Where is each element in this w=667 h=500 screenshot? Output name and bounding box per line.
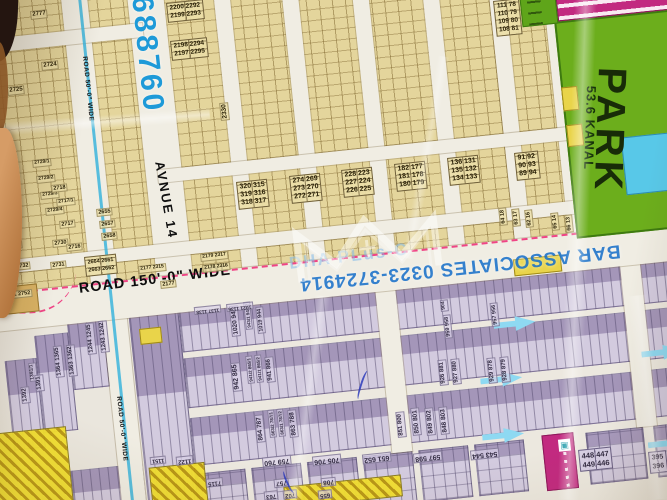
plot-number-label: 1391: [34, 374, 45, 392]
plot-number-label: 926 881: [437, 360, 449, 386]
plot-number-label: 2798: [2, 0, 20, 11]
plot-id-text: 688760: [124, 0, 170, 115]
plot-number-label: 929 878: [486, 358, 498, 384]
plot-number-label: 2716: [66, 242, 83, 252]
plot-number-label: 863/1 787/2: [276, 409, 286, 437]
plot-number-label: 763: [264, 490, 279, 500]
plot-number-label: 2734: [2, 216, 19, 226]
plot-number-label: 66 13: [564, 214, 574, 233]
plot-number-label: 395 396: [648, 450, 667, 474]
plot-number-label: 2655: [96, 207, 113, 217]
plot-number-label: 2200 2292 2199 2293: [166, 0, 205, 23]
plot-number-label: 2732: [14, 261, 31, 271]
plot-number-label: 2717: [59, 219, 76, 229]
plot-number-label: 182 177 181 178 180 179: [394, 161, 428, 192]
plot-number-label: 942 865: [230, 362, 243, 392]
road-50-label: ROAD 50'-0" WIDE: [115, 396, 129, 462]
plot-number-label: 64 18: [498, 207, 508, 226]
label-overlay: 688760 AVNUE 14 ROAD 50'-0" WIDE ROAD 50…: [0, 0, 667, 500]
plot-number-label: 2729/2: [36, 174, 56, 184]
avenue-label: AVNUE 14: [152, 160, 180, 240]
pen-mark: [356, 370, 371, 400]
plot-number-label: 2179 2317: [200, 251, 228, 262]
plot-number-label: 2718: [51, 183, 68, 193]
plot-number-label: 2777: [30, 9, 48, 20]
plot-number-label: 2714: [2, 198, 19, 208]
plot-number-label: 543 544: [470, 447, 500, 460]
plot-number-label: 651 652: [362, 451, 392, 464]
plot-number-label: 136 131 135 132 134 133: [447, 155, 481, 186]
plot-number-label: 941 866: [264, 357, 276, 383]
plot-number-label: 65 14: [550, 212, 560, 231]
plot-number-label: 904: [440, 299, 449, 312]
plot-number-label: 850 801: [410, 408, 422, 436]
park-area-label: 53.6 KANAL: [581, 85, 599, 170]
plot-number-label: 851 800: [395, 412, 407, 438]
plot-number-label: 597 598: [413, 450, 443, 463]
plot-number-label: 63 17: [511, 208, 521, 227]
plot-number-label: 1243 1242: [98, 320, 110, 353]
plot-number-label: 2729/1: [32, 158, 52, 168]
plot-number-label: 708: [321, 476, 337, 487]
plot-number-label: 1364 1365: [53, 345, 65, 378]
plot-number-label: 957 956: [490, 302, 501, 327]
plot-number-label: 274 269 273 270 272 271: [289, 173, 323, 204]
plot-number-label: 2330: [219, 102, 230, 121]
plot-number-label: 941/1 865/2: [254, 355, 264, 383]
plot-number-label: 228 223 227 224 226 225: [341, 167, 375, 198]
plot-number-label: 2717/1: [56, 197, 76, 207]
map-photo: ▣ 688760 AVNUE 14 ROAD 50'-0" WIDE ROAD …: [0, 0, 667, 500]
plot-number-label: 2725: [7, 85, 25, 96]
plot-number-label: 1392: [20, 386, 31, 404]
plot-number-label: 2731: [50, 260, 67, 270]
plot-number-label: 7115: [206, 477, 224, 488]
plot-number-label: 849 802: [424, 408, 436, 436]
plot-number-label: 2198 2294 2197 2295: [170, 37, 209, 61]
plot-number-label: 1137 1138: [194, 305, 222, 316]
road-50-label: ROAD 50'-0" WIDE: [81, 56, 95, 122]
plot-number-label: 759 760: [262, 454, 292, 467]
plot-number-label: 864 787: [254, 415, 266, 443]
plot-number-label: 448 447 449 446: [578, 447, 613, 472]
plot-number-label: 848 803: [438, 407, 450, 435]
plot-number-label: 111 78 110 79 109 80 108 81: [493, 0, 523, 37]
plot-number-label: 2724: [41, 60, 59, 71]
plot-number-label: 2177: [160, 279, 177, 289]
plot-number-label: 2664 2661 2663 2662: [84, 254, 118, 277]
plot-number-label: 2657: [99, 219, 116, 229]
plot-number-label: 91 92 90 93 89 94: [514, 151, 540, 181]
plot-number-label: 62 16: [524, 209, 534, 228]
plot-number-label: 2751 2752: [2, 289, 33, 300]
plot-number-label: 1363 1362: [66, 344, 78, 377]
plot-number-label: 2729/4: [45, 206, 65, 216]
plot-number-label: 927 880: [450, 359, 462, 385]
plot-number-label: 320 315 319 316 318 317: [236, 179, 270, 210]
plot-number-label: 1244 1245: [85, 322, 97, 355]
plot-number-label: 928 879: [499, 357, 511, 383]
plot-number-label: 1122: [176, 455, 194, 466]
plot-number-label: 863 788: [287, 410, 299, 438]
plot-number-label: 1151: [150, 455, 167, 465]
plot-number-label: 1019 944: [255, 306, 266, 334]
plot-number-label: 2733: [6, 240, 23, 250]
plot-number-label: 959 958: [443, 314, 454, 339]
plot-number-label: 655: [318, 489, 333, 499]
plot-number-label: 705 706: [312, 453, 342, 466]
plot-number-label: 2658: [101, 231, 118, 241]
